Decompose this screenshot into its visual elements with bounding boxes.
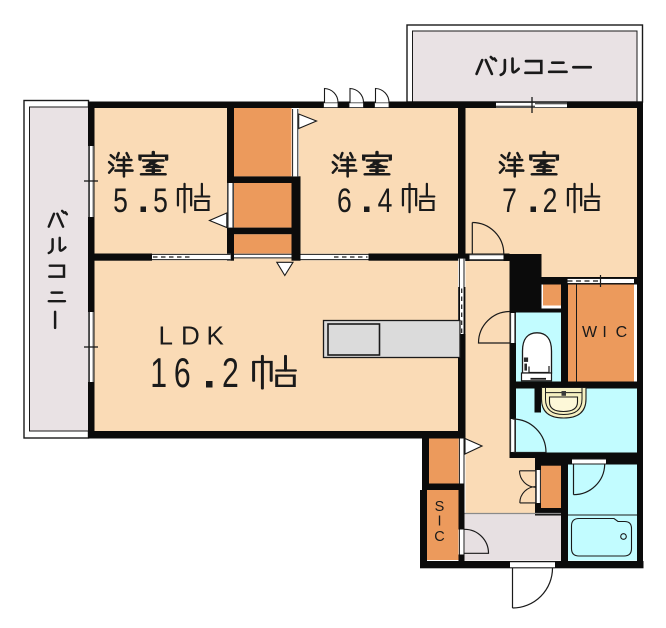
svg-text:LDK: LDK	[159, 321, 225, 351]
svg-text:C: C	[434, 529, 444, 545]
svg-text:WIC: WIC	[582, 324, 627, 341]
svg-text:I: I	[437, 514, 441, 530]
